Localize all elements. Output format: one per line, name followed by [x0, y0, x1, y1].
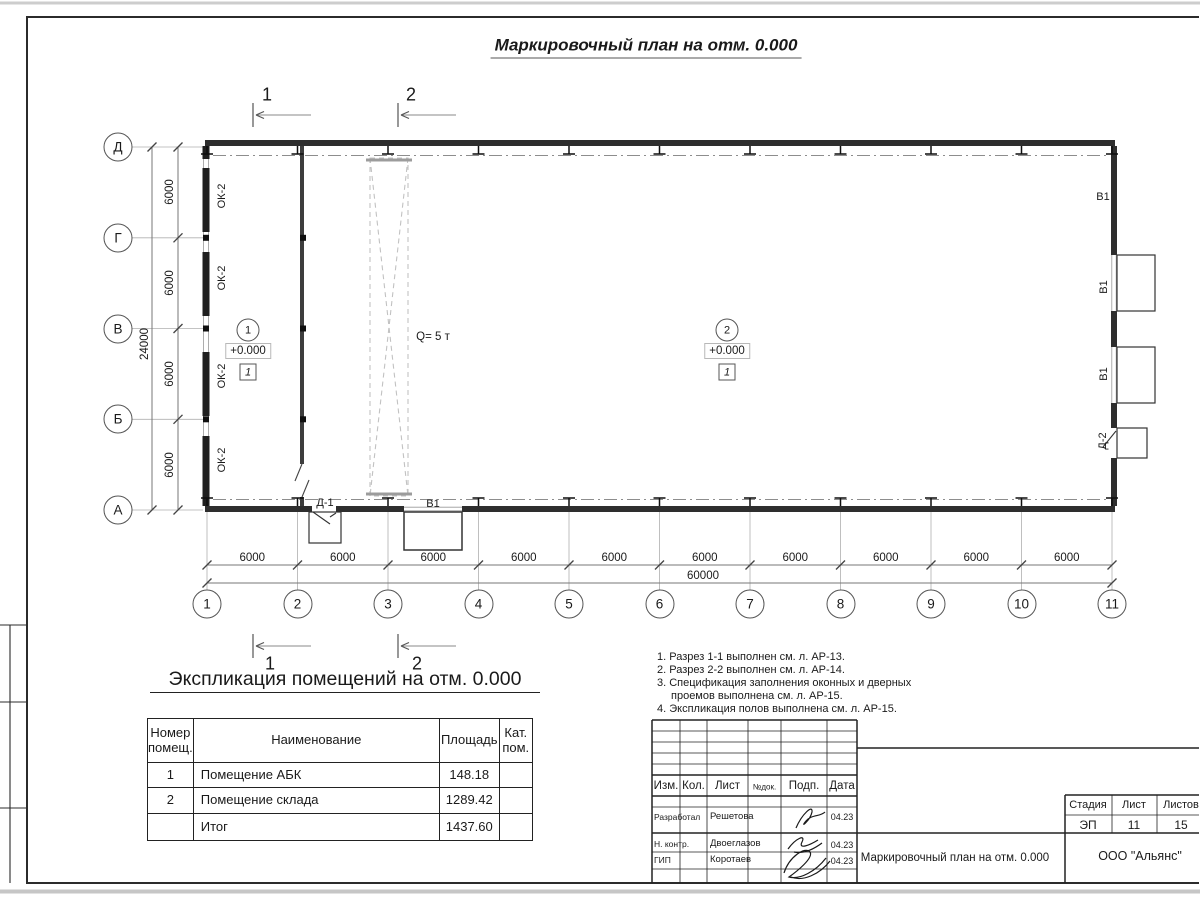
- stamp-date: 04.23: [831, 856, 854, 866]
- grid-bubble-col: 1: [193, 590, 222, 619]
- stamp-sheets-value: 15: [1174, 818, 1187, 832]
- stamp-col-kol: Кол.: [682, 780, 705, 792]
- stamp-date: 04.23: [831, 840, 854, 850]
- stamp-role: Разработал: [654, 812, 700, 822]
- room-elevation: +0.000: [225, 343, 271, 359]
- room-elevation: +0.000: [704, 343, 750, 359]
- col-header-num: Номерпомещ.: [148, 719, 194, 763]
- dimension-lines: [152, 147, 1112, 583]
- grid-bubble-col: 9: [917, 590, 946, 619]
- window-label: ОК-2: [216, 184, 228, 209]
- table-row: Итог 1437.60: [148, 814, 533, 841]
- explication-heading: Экспликация помещений на отм. 0.000: [150, 668, 540, 693]
- room-floor-type: 1: [240, 364, 257, 381]
- grid-bubble-row: Д: [104, 133, 133, 162]
- grid-bubble-col: 11: [1098, 590, 1127, 619]
- crane-axis-lines: [213, 156, 1107, 500]
- grid-bubble-col: 5: [555, 590, 584, 619]
- stamp-role: ГИП: [654, 855, 671, 865]
- dim-bay: 6000: [1054, 552, 1080, 564]
- grid-bubble-row: А: [104, 496, 133, 525]
- section-mark-2-top: 2: [406, 85, 416, 106]
- grid-bubble-col: 10: [1007, 590, 1036, 619]
- note-line: 4. Экспликация полов выполнена см. л. АР…: [657, 703, 911, 716]
- grid-bubble-col: 2: [283, 590, 312, 619]
- gate-label: В1: [1098, 367, 1110, 380]
- window-label: ОК-2: [216, 448, 228, 473]
- stamp-name: Коротаев: [710, 854, 751, 865]
- stamp-stage-label: Стадия: [1069, 799, 1107, 811]
- dim-bay: 6000: [240, 552, 266, 564]
- dim-bay: 6000: [164, 180, 176, 206]
- dim-bay: 6000: [873, 552, 899, 564]
- walls: [203, 140, 1118, 512]
- window-label: ОК-2: [216, 364, 228, 389]
- table-row: 1 Помещение АБК 148.18: [148, 763, 533, 788]
- grid-bubble-row: Б: [104, 405, 133, 434]
- crane-capacity-label: Q= 5 т: [416, 331, 450, 343]
- dim-bay: 6000: [164, 361, 176, 387]
- col-header-name: Наименование: [193, 719, 439, 763]
- dim-bay: 6000: [164, 270, 176, 296]
- dim-bay: 6000: [421, 552, 447, 564]
- signatures: [784, 809, 830, 878]
- section-marks: [253, 103, 456, 658]
- dim-bay: 6000: [964, 552, 990, 564]
- table-row: 2 Помещение склада 1289.42: [148, 788, 533, 814]
- col-header-area: Площадь: [439, 719, 499, 763]
- dimension-ticks: [148, 143, 1117, 588]
- grid-lines: [132, 147, 1112, 591]
- stamp-sheet-value: 11: [1128, 818, 1140, 832]
- stamp-col-izm: Изм.: [654, 780, 679, 792]
- grid-bubble-col: 7: [736, 590, 765, 619]
- col-header-cat: Кат.пом.: [499, 719, 532, 763]
- grid-bubble-col: 3: [374, 590, 403, 619]
- stamp-sheets-label: Листов: [1163, 799, 1199, 811]
- stamp-date: 04.23: [831, 812, 854, 822]
- dim-bay: 6000: [164, 452, 176, 478]
- dim-bay: 6000: [602, 552, 628, 564]
- dim-bay: 6000: [330, 552, 356, 564]
- dim-bay: 6000: [783, 552, 809, 564]
- grid-bubble-row: В: [104, 314, 133, 343]
- grid-bubble-row: Г: [104, 223, 133, 252]
- stamp-col-list: Лист: [715, 780, 740, 792]
- drawing-sheet: Маркировочный план на отм. 0.000 1 2 1 2…: [0, 0, 1200, 900]
- stamp-name: Решетова: [710, 811, 754, 822]
- note-line: проемов выполнена см. л. АР-15.: [671, 690, 911, 703]
- stamp-col-data: Дата: [829, 780, 854, 792]
- stamp-doc-title: Маркировочный план на отм. 0.000: [861, 852, 1049, 864]
- door-label-d2: Д-2: [1097, 432, 1109, 449]
- gate-label: В1: [1096, 191, 1109, 203]
- room-number-marker: 2: [716, 319, 739, 342]
- stamp-stage-value: ЭП: [1079, 818, 1096, 832]
- notes-list: 1. Разрез 1-1 выполнен см. л. АР-13. 2. …: [657, 651, 911, 716]
- stamp-sheet-label: Лист: [1122, 799, 1146, 811]
- dim-bay: 6000: [511, 552, 537, 564]
- dim-total-height: 24000: [139, 328, 151, 360]
- grid-bubble-col: 4: [464, 590, 493, 619]
- room-number-marker: 1: [237, 319, 260, 342]
- dim-bay: 6000: [692, 552, 718, 564]
- stamp-col-ndoc: №док.: [753, 783, 776, 792]
- stamp-col-podp: Подп.: [789, 780, 820, 792]
- explication-table: Номерпомещ. Наименование Площадь Кат.пом…: [147, 718, 533, 841]
- grid-bubble-col: 6: [645, 590, 674, 619]
- stamp-role: Н. контр.: [654, 839, 689, 849]
- gate-label: В1: [426, 498, 439, 510]
- crane-symbol: [366, 158, 412, 496]
- grid-bubble-col: 8: [826, 590, 855, 619]
- note-line: 2. Разрез 2-2 выполнен см. л. АР-14.: [657, 664, 911, 677]
- room-floor-type: 1: [719, 364, 736, 381]
- sheet-title: Маркировочный план на отм. 0.000: [491, 36, 802, 59]
- stamp-company: ООО "Альянс": [1098, 849, 1182, 863]
- window-label: ОК-2: [216, 266, 228, 291]
- gate-label: В1: [1098, 280, 1110, 293]
- dim-total-width: 60000: [687, 570, 719, 582]
- stamp-name: Двоеглазов: [710, 838, 761, 849]
- door-label-d1: Д-1: [316, 497, 333, 509]
- note-line: 3. Спецификация заполнения оконных и две…: [657, 677, 911, 690]
- note-line: 1. Разрез 1-1 выполнен см. л. АР-13.: [657, 651, 911, 664]
- section-mark-1-top: 1: [262, 85, 272, 106]
- column-marks: [201, 146, 1118, 506]
